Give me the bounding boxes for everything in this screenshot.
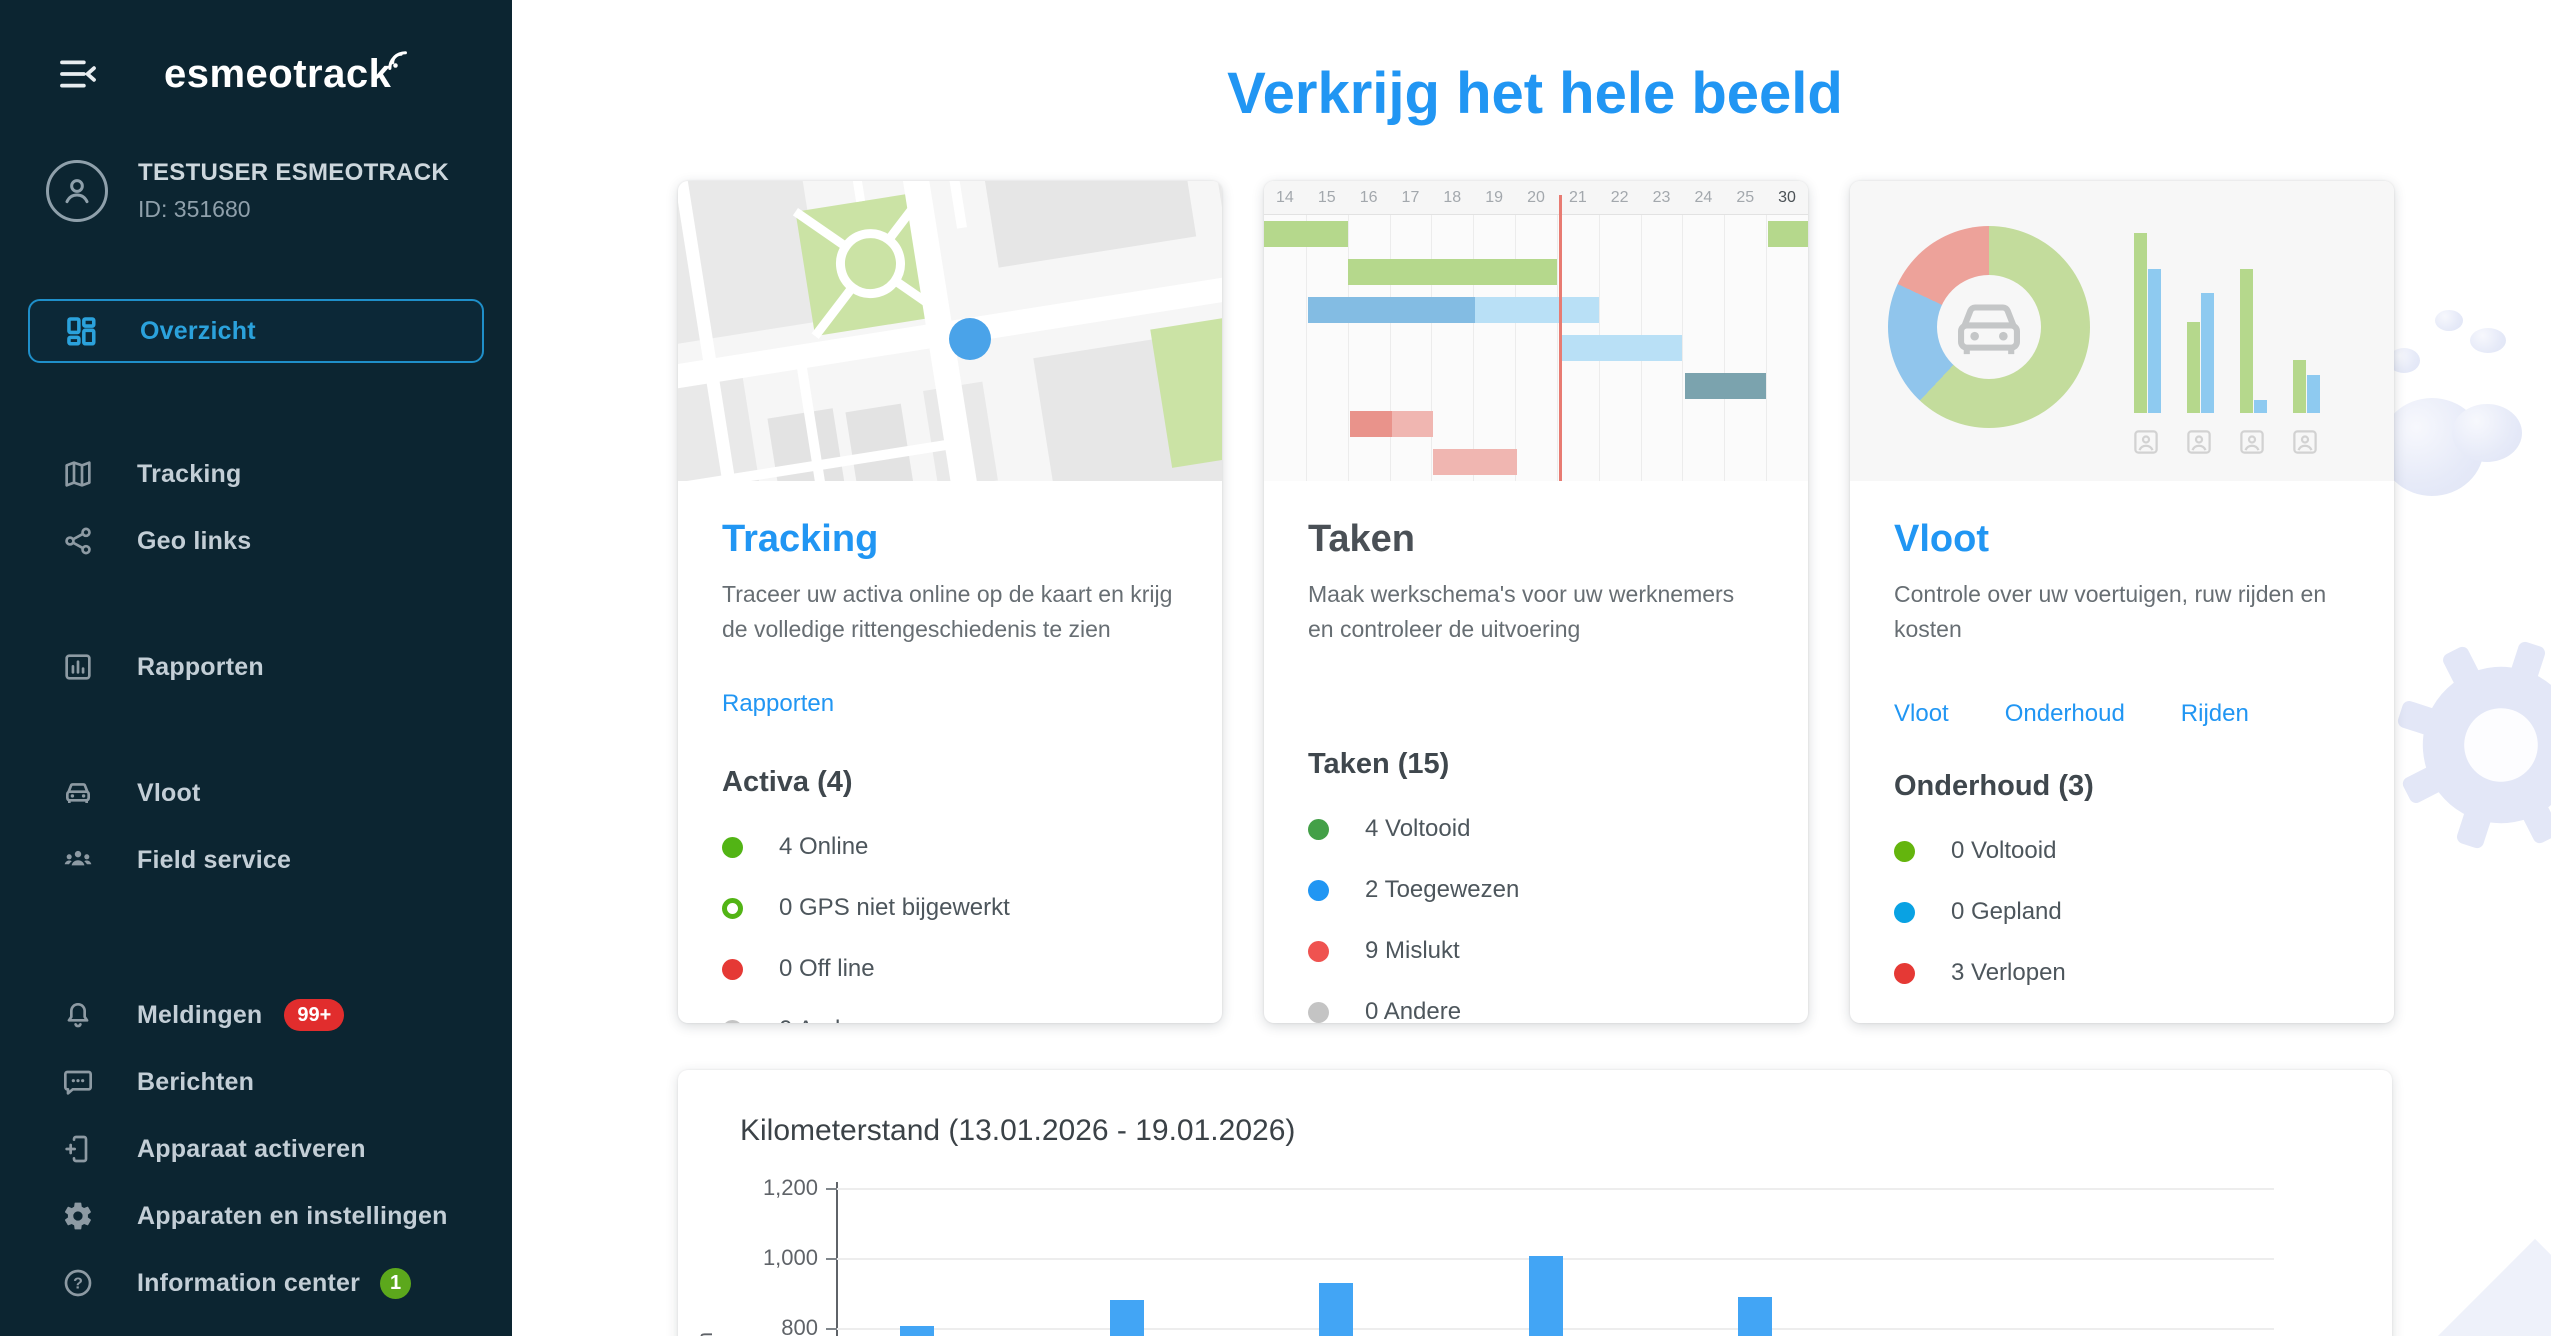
gantt-day-label: 25 [1724,189,1766,207]
axis-tick [826,1258,837,1260]
report-chart-icon [62,651,94,683]
gantt-gridline [1348,215,1349,481]
taken-card-description: Maak werkschema's voor uw werknemers en … [1308,577,1764,646]
gantt-gridline [1431,215,1432,481]
legend-item: 0 Off line [722,953,1178,985]
fleet-bar-blue [2201,293,2214,413]
mileage-bar [1738,1297,1772,1336]
tracking-card-title[interactable]: Tracking [722,518,1178,561]
vloot-card-description: Controle over uw voertuigen, ruw rijden … [1894,577,2350,646]
app-logo: esmeotrack [164,52,391,97]
fleet-bar-green [2240,269,2253,413]
sidebar-item-berichten[interactable]: Berichten [0,1061,512,1103]
gantt-day-label: 18 [1431,189,1473,207]
logo-text: esmeotrack [164,52,391,96]
axis-tick [826,1188,837,1190]
user-profile[interactable]: TESTUSER ESMEOTRACK ID: 351680 [46,159,512,223]
mileage-bar [1319,1283,1353,1336]
sidebar-item-rapporten[interactable]: Rapporten [0,646,512,688]
gantt-day-label: 20 [1515,189,1557,207]
sidebar-item-information-center[interactable]: ? Information center 1 [0,1262,512,1304]
gantt-bar [1433,449,1517,475]
rapporten-link[interactable]: Rapporten [722,690,834,718]
vloot-card: Vloot Controle over uw voertuigen, ruw r… [1850,181,2394,1023]
driver-icon [2184,427,2214,457]
sidebar-item-tracking[interactable]: Tracking [0,453,512,495]
legend-item: 0 Voltooid [1894,835,2350,867]
activa-section-title: Activa (4) [722,766,1178,799]
mileage-chart-card: Kilometerstand (13.01.2026 - 19.01.2026)… [678,1070,2392,1336]
status-dot [722,898,743,919]
legend-item: 0 Andere [1894,1018,2350,1023]
notification-badge: 99+ [284,999,344,1031]
fleet-bar-blue [2254,400,2267,413]
signal-waves-icon [387,40,421,74]
overview-cards: Tracking Traceer uw activa online op de … [678,181,2394,1023]
gantt-day-label: 22 [1599,189,1641,207]
gantt-day-label: 19 [1473,189,1515,207]
legend-item: 2 Toegewezen [1308,874,1764,906]
taken-card: 14151617181920212223242530 Taken Maak we… [1264,181,1808,1023]
axis-tick [826,1328,837,1330]
fleet-bar-green [2134,233,2147,413]
gridline [837,1188,2274,1190]
gantt-today-line [1559,195,1562,481]
fleet-bar-blue [2148,269,2161,413]
sidebar-item-apparaten-instellingen[interactable]: Apparaten en instellingen [0,1195,512,1237]
onderhoud-section-title: Onderhoud (3) [1894,770,2350,803]
status-dot [1894,963,1915,984]
status-dot [1894,841,1915,862]
fleet-bar-green [2293,360,2306,413]
legend-item: 0 GPS niet bijgewerkt [722,892,1178,924]
mileage-plot: km 1,2001,000800 [678,1070,2392,1336]
sidebar-item-apparaat-activeren[interactable]: Apparaat activeren [0,1128,512,1170]
menu-collapse-icon [59,58,97,90]
share-icon [62,525,94,557]
y-axis-tick-label: 1,000 [678,1245,818,1271]
sidebar-nav: Tracking Geo links Rapporten [0,453,512,1304]
gantt-gridline [1473,215,1474,481]
gantt-gridline [1515,215,1516,481]
gantt-gridline [1766,215,1767,481]
driver-icon [2290,427,2320,457]
gantt-bar [1308,297,1475,323]
legend-item: 9 Mislukt [1308,935,1764,967]
y-axis-tick-label: 1,200 [678,1175,818,1201]
gantt-bar [1392,411,1434,437]
gantt-bar [1559,335,1682,361]
map-icon [62,458,94,490]
gantt-gridline [1390,215,1391,481]
status-dot [722,959,743,980]
bell-icon [62,999,94,1031]
device-add-icon [62,1133,94,1165]
legend-item: 0 Andere [1308,996,1764,1023]
vloot-card-title[interactable]: Vloot [1894,518,2350,561]
fleet-charts-preview [1850,181,2394,481]
vloot-link[interactable]: Vloot [1894,700,1949,728]
tracking-card: Tracking Traceer uw activa online op de … [678,181,1222,1023]
avatar [46,160,108,222]
page-title: Verkrijg het hele beeld [678,60,2392,127]
sidebar-item-meldingen[interactable]: Meldingen 99+ [0,994,512,1036]
info-badge: 1 [380,1268,411,1299]
gantt-bar [1264,221,1348,247]
chat-icon [62,1066,94,1098]
legend-item: 0 Gepland [1894,896,2350,928]
gantt-day-label: 14 [1264,189,1306,207]
mileage-bar [1529,1256,1563,1336]
gantt-gridline [1306,215,1307,481]
people-icon [62,844,94,876]
taken-legend: 4 Voltooid 2 Toegewezen 9 Mislukt 0 Ande… [1308,813,1764,1023]
gantt-bar [1348,259,1557,285]
vehicle-location-dot [949,318,991,360]
fleet-bar-green [2187,322,2200,413]
status-dot [1308,819,1329,840]
fleet-bar-blue [2307,375,2320,413]
gear-icon [62,1200,94,1232]
decor-bubble [2470,328,2506,353]
gantt-chart: 14151617181920212223242530 [1264,181,1808,481]
status-dot [722,1020,743,1024]
gantt-day-label: 15 [1306,189,1348,207]
gantt-day-label: 24 [1682,189,1724,207]
gantt-bar [1768,221,1808,247]
gantt-bar [1685,373,1767,399]
dashboard-icon [64,314,98,348]
legend-item: 0 Andere [722,1014,1178,1023]
decor-bubble [2452,404,2522,462]
svg-text:?: ? [73,1276,83,1293]
sidebar-item-field-service[interactable]: Field service [0,839,512,881]
gantt-gridline [1724,215,1725,481]
driver-icon [2237,427,2267,457]
onderhoud-legend: 0 Voltooid 0 Gepland 3 Verlopen 0 Andere [1894,835,2350,1023]
sidebar-collapse-button[interactable] [58,58,98,92]
legend-item: 3 Verlopen [1894,957,2350,989]
sidebar: esmeotrack TESTUSER ESMEOTRACK ID: 35168… [0,0,512,1336]
status-dot [1308,880,1329,901]
gantt-day-label: 23 [1641,189,1683,207]
y-axis-tick-label: 800 [678,1315,818,1336]
gantt-day-label: 16 [1348,189,1390,207]
gantt-bar [1350,411,1392,437]
legend-item: 4 Voltooid [1308,813,1764,845]
gantt-bar [1475,297,1598,323]
tracking-map-preview [678,181,1222,481]
person-icon [57,171,97,211]
activa-legend: 4 Online 0 GPS niet bijgewerkt 0 Off lin… [722,831,1178,1023]
gantt-day-label: 30 [1766,189,1808,207]
map-illustration [678,181,1222,481]
user-name: TESTUSER ESMEOTRACK [138,159,449,187]
mileage-bar [1110,1300,1144,1336]
sidebar-item-label: Overzicht [140,317,256,346]
legend-item: 4 Online [722,831,1178,863]
decor-bubble [2435,310,2463,331]
car-icon [1913,253,2065,405]
taken-card-title: Taken [1308,518,1764,561]
car-icon [62,777,94,809]
sidebar-item-vloot[interactable]: Vloot [0,772,512,814]
tracking-card-description: Traceer uw activa online op de kaart en … [722,577,1178,646]
onderhoud-link[interactable]: Onderhoud [2005,700,2125,728]
mileage-bar [900,1326,934,1336]
driver-icon [2131,427,2161,457]
taken-section-title: Taken (15) [1308,748,1764,781]
user-id: ID: 351680 [138,196,449,223]
gantt-gridline [1682,215,1683,481]
sidebar-item-geo-links[interactable]: Geo links [0,520,512,562]
sidebar-item-overzicht[interactable]: Overzicht [28,299,484,363]
decor-shape [2429,1239,2551,1336]
rijden-link[interactable]: Rijden [2181,700,2249,728]
status-dot [1308,941,1329,962]
gantt-day-label: 21 [1557,189,1599,207]
status-dot [722,837,743,858]
help-icon: ? [62,1267,94,1299]
status-dot [1308,1002,1329,1023]
status-dot [1894,902,1915,923]
gantt-day-label: 17 [1390,189,1432,207]
